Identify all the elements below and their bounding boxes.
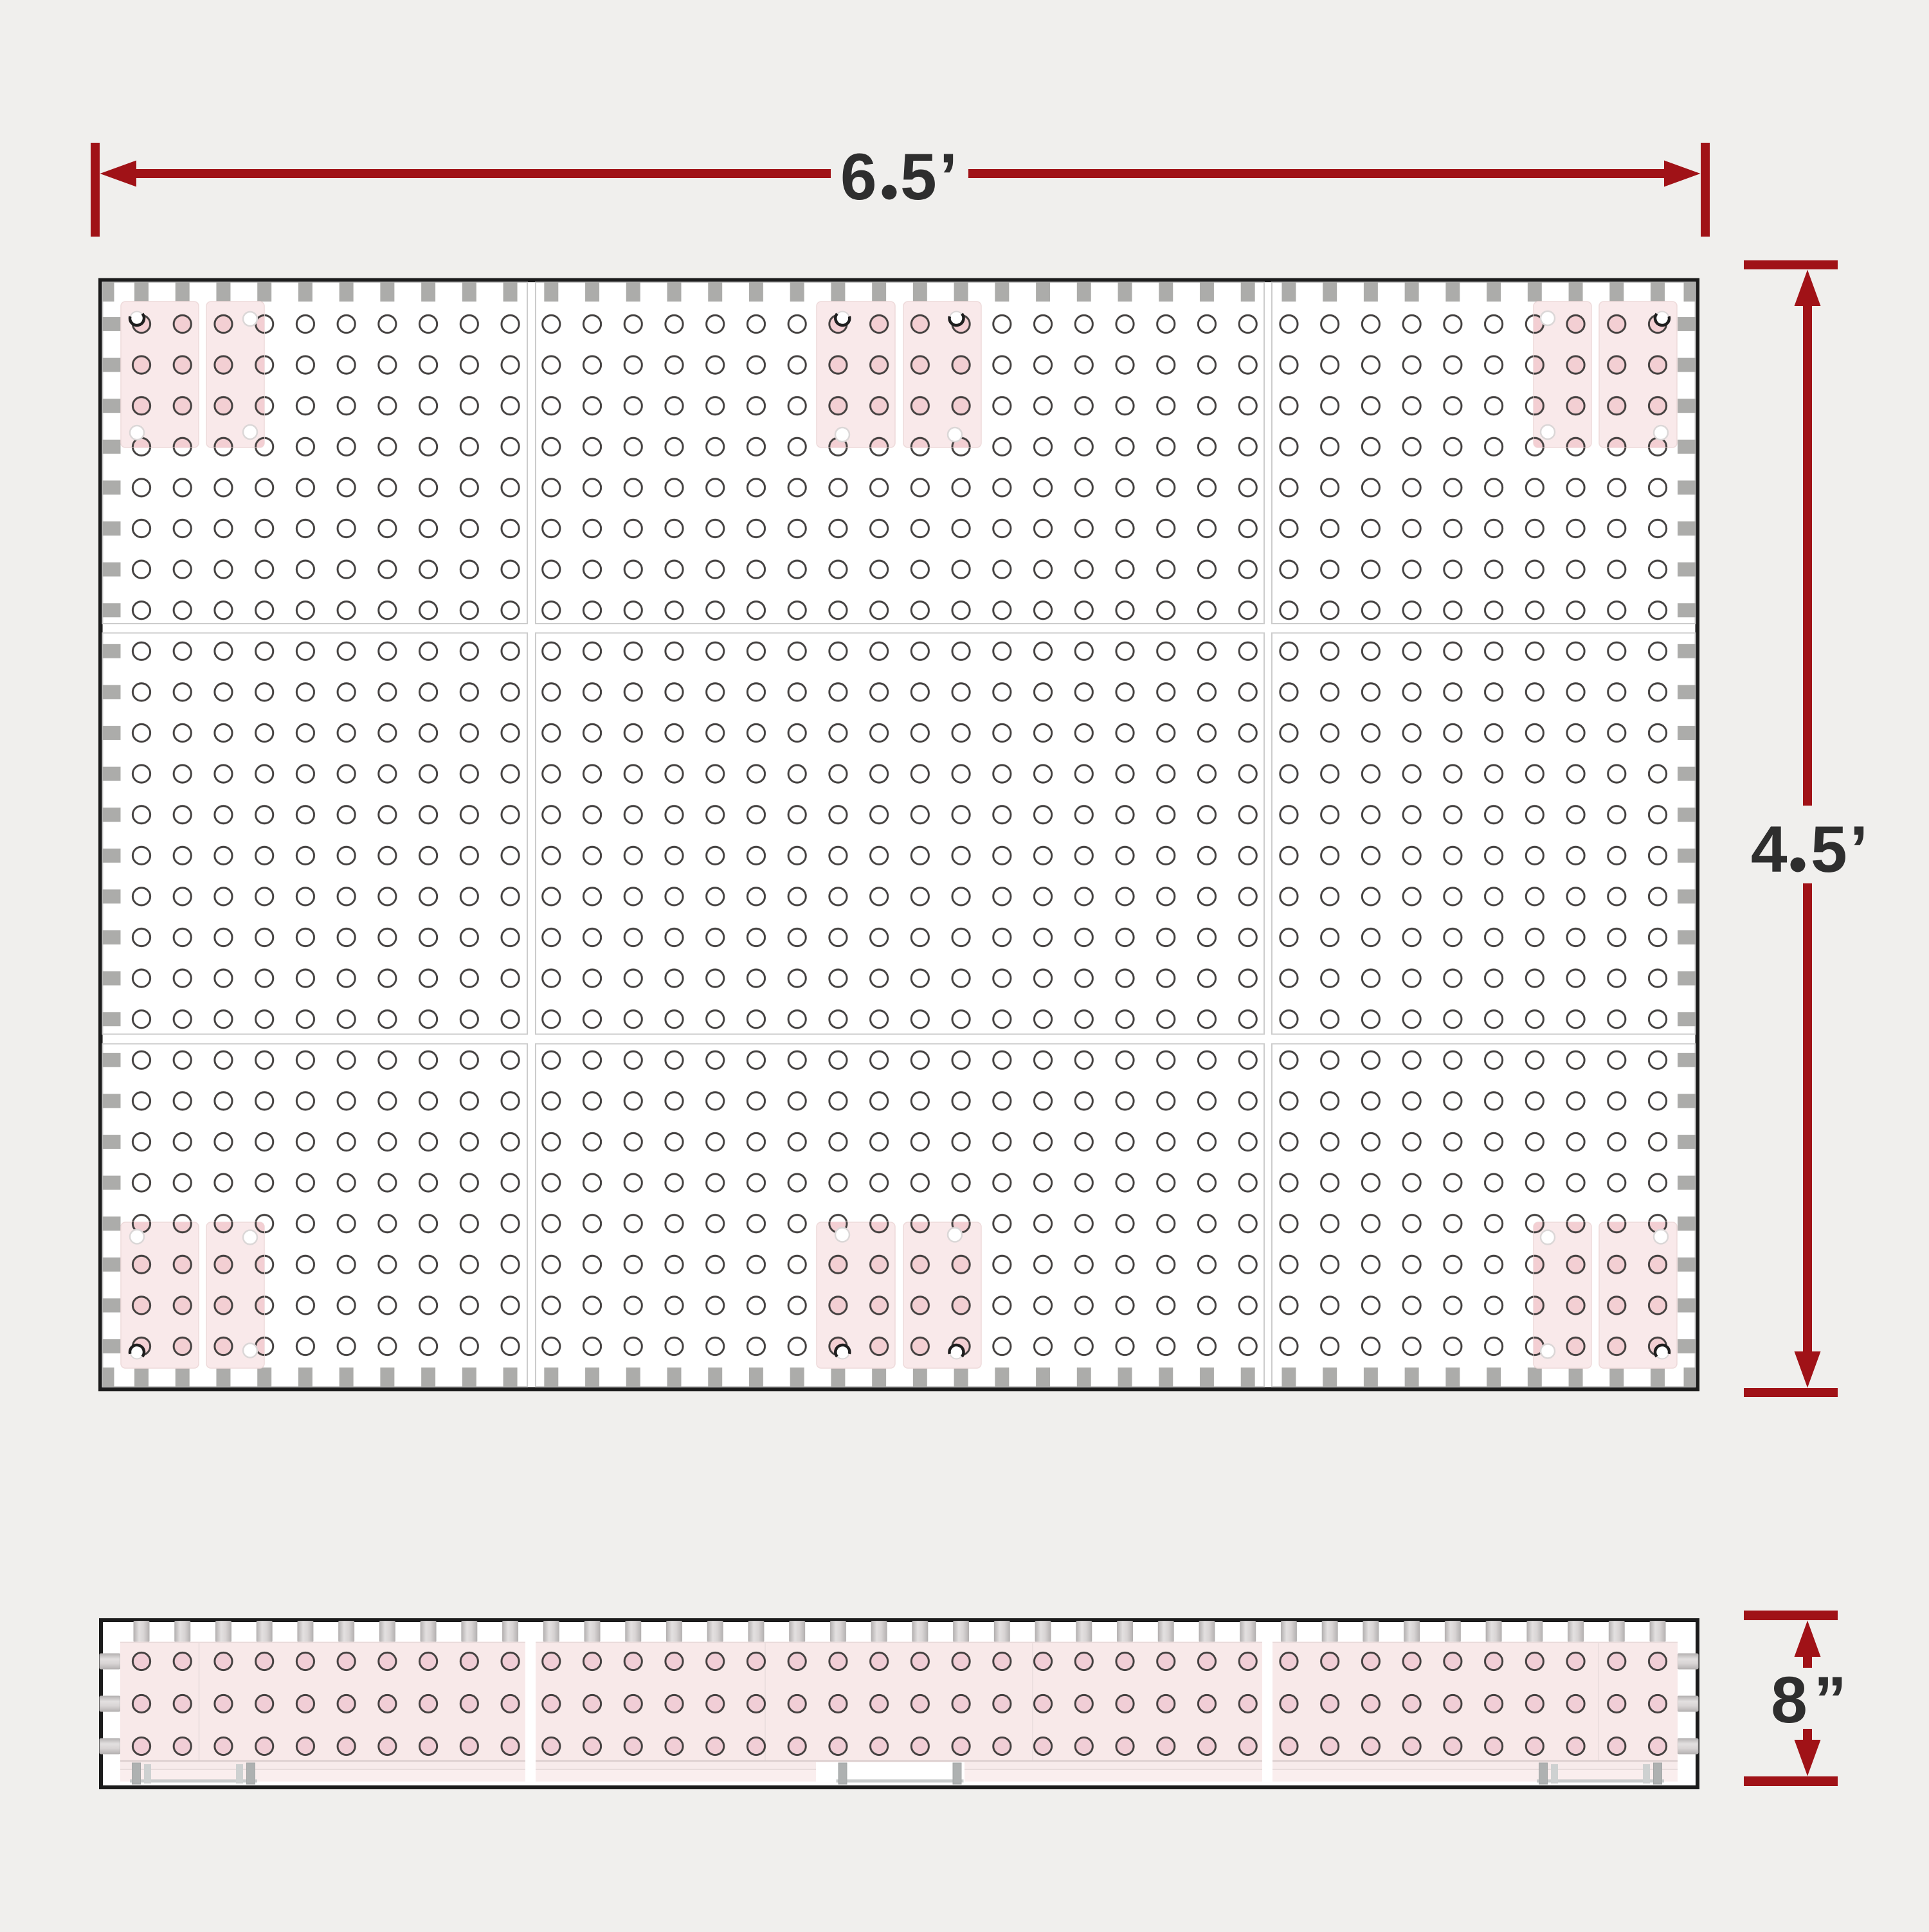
svg-text:4.5’: 4.5’ bbox=[1751, 813, 1870, 886]
svg-text:6.5’: 6.5’ bbox=[840, 140, 960, 213]
svg-text:8”: 8” bbox=[1771, 1663, 1853, 1737]
